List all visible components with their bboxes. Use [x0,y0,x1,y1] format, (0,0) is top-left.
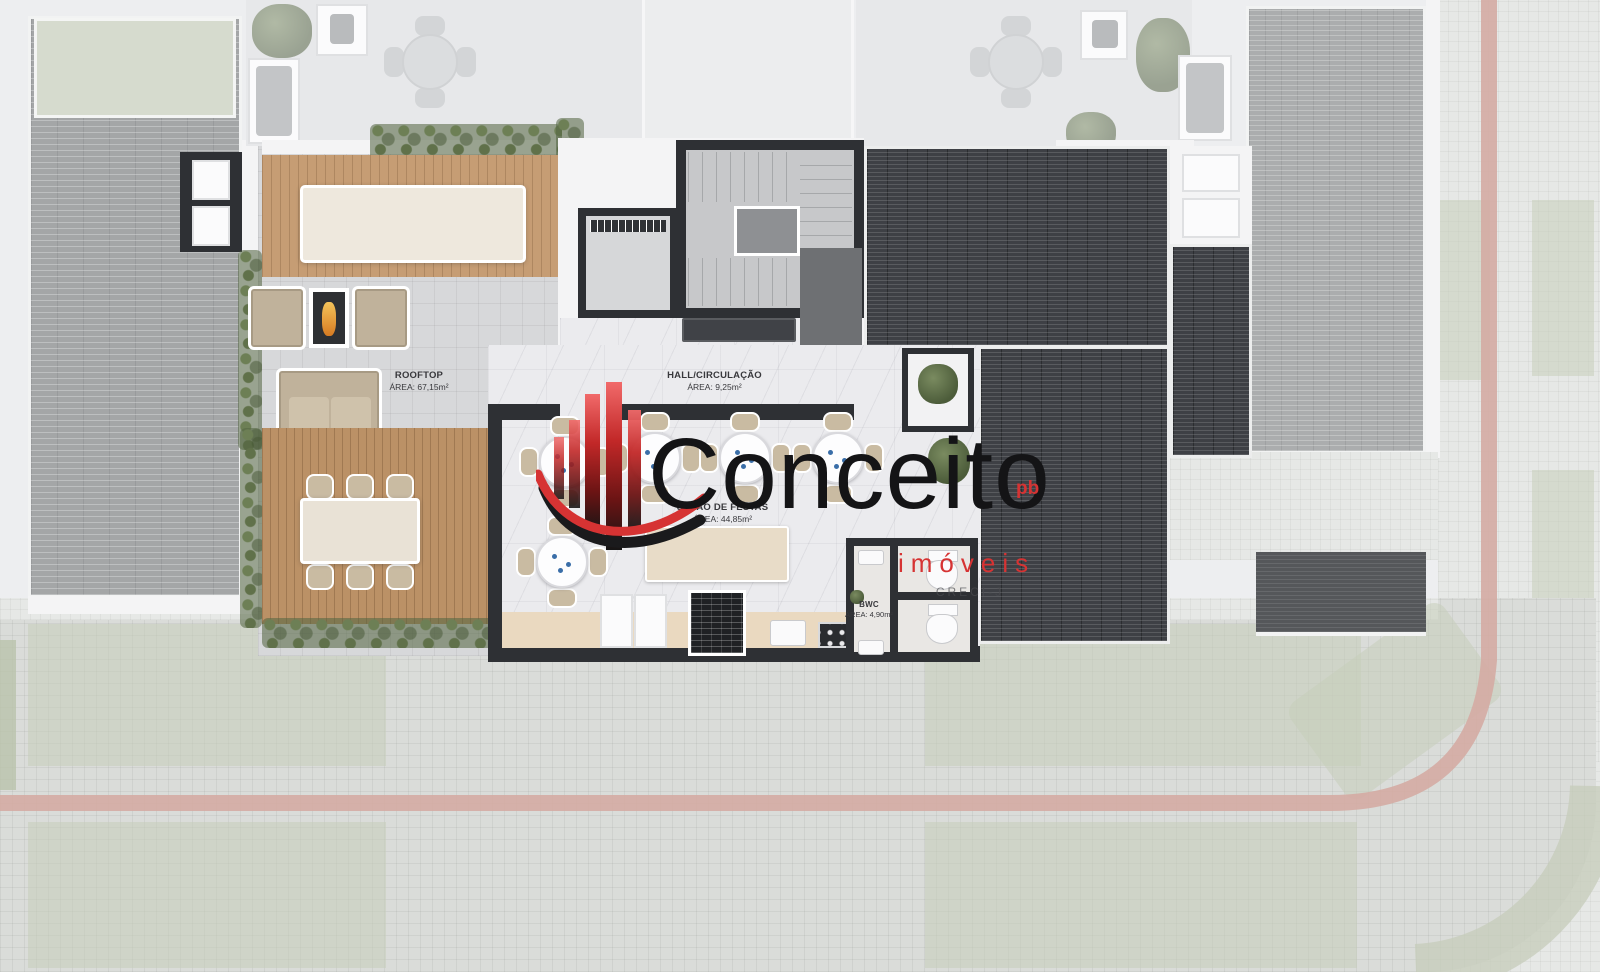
patio-chair [1001,88,1031,108]
table-setting [566,562,571,567]
party-chair [547,516,577,536]
wall [890,546,898,654]
table-setting [558,568,563,573]
party-chair [823,484,853,504]
patio-chair [970,47,990,77]
party-chair [547,588,577,608]
terrace-a-bush [252,4,312,58]
floor-plan-canvas: ROOFTOP ÁREA: 67,15m² HALL/CIRCULAÇÃO ÁR… [0,0,1600,972]
terrace-a-table-set [384,16,476,108]
party-table [629,432,681,484]
dining-chair [346,564,374,590]
plaza-edge-planting [0,640,16,790]
patio-table [988,34,1044,90]
party-chair [516,547,536,577]
party-table-set [699,412,791,504]
small-plant [850,590,864,604]
potted-tree [928,438,970,484]
toilet [926,560,958,590]
fire-flame [322,302,336,336]
bwc-sink [858,550,884,565]
table-setting [741,464,746,469]
party-chair [699,443,719,473]
potted-tree [918,364,958,404]
stair-flight [688,258,798,306]
fire-pit [309,288,349,348]
roof-gray-brick-right [1246,6,1426,454]
table-setting [552,554,557,559]
terrace-b-table-set [970,16,1062,108]
party-table-set [609,412,701,504]
wall [890,592,978,600]
dining-chair [346,474,374,500]
niche-room [902,348,974,432]
patio-table [402,34,458,90]
party-chair [792,443,812,473]
service-unit [192,160,230,200]
rooftop-bar-table [300,185,526,263]
patio-chair [1001,16,1031,36]
core-roof [642,0,854,142]
roof-dark-lower [978,346,1170,644]
party-chair [550,416,580,436]
party-chair [864,443,884,473]
party-table-set [792,412,884,504]
street-lawn-patch [1440,200,1490,380]
roof-dark-ext [1170,244,1252,458]
party-chair [588,547,608,577]
party-table-set [516,516,608,608]
buffet-counter [645,526,789,582]
party-table [539,436,591,488]
party-chair [730,412,760,432]
table-setting [555,454,560,459]
lobby-bench [682,318,796,342]
brick-oven [688,590,746,656]
fridge [634,594,667,648]
plaza-lawn-patch [925,624,1361,766]
elevator-door [590,220,666,232]
terrace-a-lounger-cushion [256,66,292,136]
dining-chair [386,564,414,590]
table-setting [842,458,847,463]
table-setting [569,462,574,467]
party-chair [640,484,670,504]
rooftop-west-planter [238,250,262,450]
wall-band [1426,0,1440,458]
plaza-lawn-patch [925,822,1357,968]
table-setting [828,450,833,455]
kitchen-sink [770,620,806,646]
toilet [926,614,958,644]
fridge [600,594,633,648]
roof-dark-band [1256,552,1426,636]
apron-pavement [1170,452,1438,560]
patio-chair [384,47,404,77]
table-setting [834,464,839,469]
terrace-b-cushion [1092,20,1118,48]
party-chair [730,484,760,504]
table-setting [645,450,650,455]
party-chair [609,443,629,473]
table-setting [561,468,566,473]
patio-chair [415,16,445,36]
elevator [578,208,678,318]
street-lawn-patch [1532,200,1594,376]
dining-chair [306,564,334,590]
lounge-armchair [248,286,306,350]
party-chair [681,443,701,473]
patio-chair [1042,47,1062,77]
lounge-armchair [352,286,410,350]
deck-b-planter-left [240,428,262,628]
table-setting [749,458,754,463]
patio-chair [415,88,445,108]
table-setting [735,450,740,455]
table-setting [659,458,664,463]
roof-dark-upper [864,146,1170,348]
bwc-sink [858,640,884,655]
dark-floor-patch [800,248,862,346]
table-setting [651,464,656,469]
terrace-b-lounger-cushion [1186,63,1224,133]
roof-pad [34,18,236,118]
party-table [536,536,588,588]
dining-table [300,498,420,564]
party-chair [519,447,539,477]
deck-b-planter-bottom [262,618,502,648]
stair-flight [688,152,798,202]
party-chair [550,488,580,508]
stair-landing [734,206,800,256]
patio-chair [456,47,476,77]
equipment-unit [1182,198,1240,238]
plaza-lawn-patch [28,822,386,968]
party-chair [640,412,670,432]
party-table [719,432,771,484]
party-chair [591,447,611,477]
party-chair [771,443,791,473]
service-unit [192,206,230,246]
party-table [812,432,864,484]
equipment-unit [1182,154,1240,192]
dining-chair [306,474,334,500]
terrace-a-cushion [330,14,354,44]
wall [846,538,978,546]
party-table-set [519,416,611,508]
wall [488,404,502,660]
dining-chair [386,474,414,500]
party-chair [823,412,853,432]
